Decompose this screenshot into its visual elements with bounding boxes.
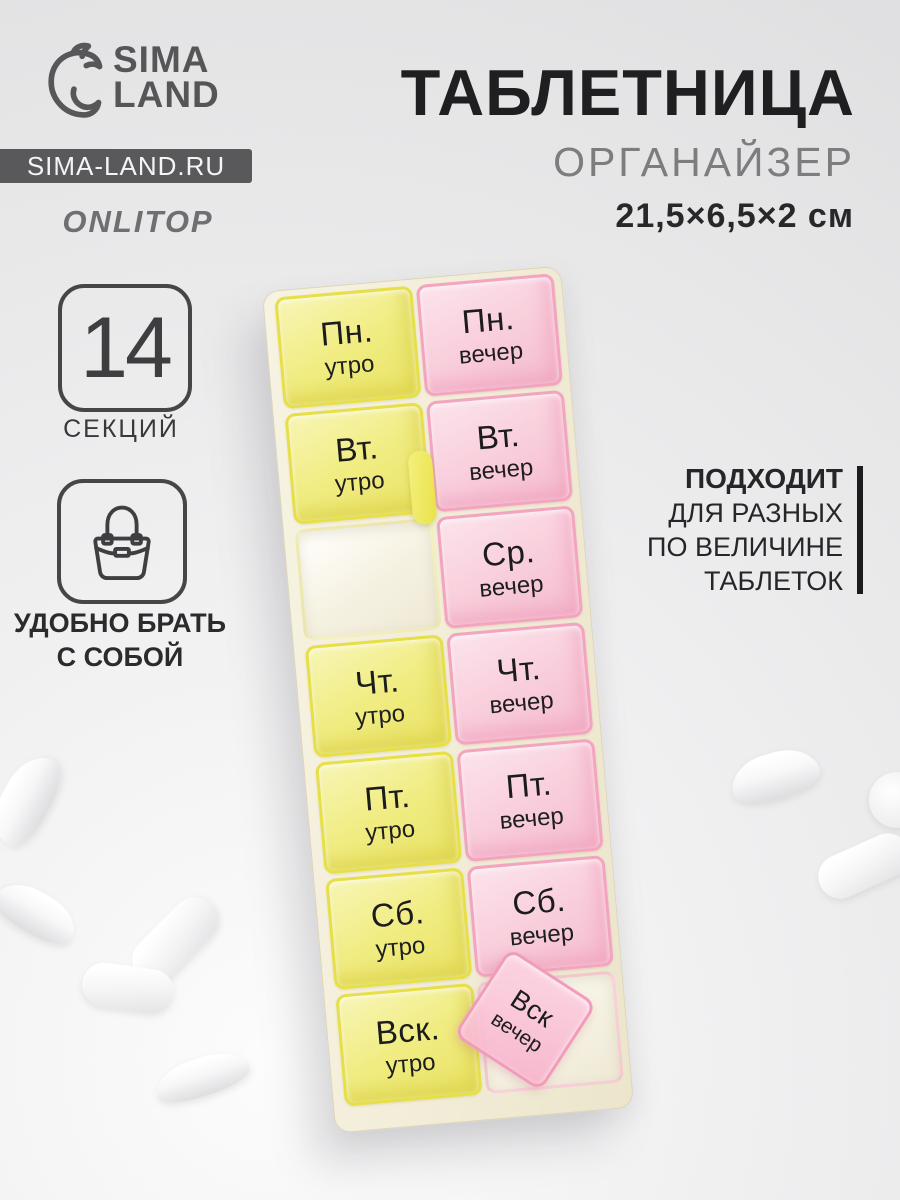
- pill-organizer: Пн.утроВт.утроЧт.утроПт.утроСб.утроВск.у…: [262, 266, 635, 1134]
- organizer-cell-sun-morning: Вск.утро: [335, 983, 482, 1106]
- organizer-cell-sat-evening: Сб.вечер: [467, 855, 614, 978]
- handbag-icon: [79, 499, 165, 585]
- white-tablet-pill: [725, 741, 824, 810]
- cell-day-label: Пт.: [504, 765, 553, 807]
- cell-time-label: вечер: [499, 803, 565, 836]
- cell-time-label: утро: [354, 699, 406, 731]
- brand-name-line1: SIMA: [113, 42, 220, 77]
- organizer-cell-thu-morning: Чт.утро: [305, 634, 452, 757]
- cell-time-label: вечер: [488, 686, 554, 719]
- organizer-cell-fri-evening: Пт.вечер: [456, 738, 603, 861]
- cell-day-label: Вск.: [374, 1009, 441, 1052]
- organizer-cell-mon-morning: Пн.утро: [274, 286, 421, 409]
- white-round-pill: [869, 772, 900, 828]
- fits-line4: ТАБЛЕТОК: [647, 564, 843, 598]
- white-tablet-pill: [0, 746, 70, 853]
- organizer-cell-tue-evening: Вт.вечер: [426, 389, 573, 512]
- product-dimensions: 21,5×6,5×2 см: [615, 197, 854, 236]
- organizer-cell-wed-evening: Ср.вечер: [436, 506, 583, 629]
- sections-count: 14: [80, 299, 170, 398]
- fits-feature-block: ПОДХОДИТ ДЛЯ РАЗНЫХ ПО ВЕЛИЧИНЕ ТАБЛЕТОК: [647, 462, 863, 598]
- organizer-cell-thu-evening: Чт.вечер: [446, 622, 593, 745]
- portable-line1: УДОБНО БРАТЬ: [0, 606, 240, 640]
- organizer-cell-sun-evening: Всквечер: [477, 971, 624, 1094]
- fits-text: ПОДХОДИТ ДЛЯ РАЗНЫХ ПО ВЕЛИЧИНЕ ТАБЛЕТОК: [647, 462, 843, 598]
- cell-day-label: Вт.: [475, 416, 521, 458]
- sima-land-logo-icon: [44, 42, 106, 122]
- cell-day-label: Пн.: [319, 312, 375, 354]
- cell-day-label: Вт.: [334, 428, 380, 470]
- portable-line2: С СОБОЙ: [0, 640, 240, 674]
- white-capsule-pill: [811, 826, 900, 905]
- organizer-cell-mon-evening: Пн.вечер: [416, 273, 563, 396]
- cell-day-label: Пт.: [363, 777, 412, 819]
- brand-name: SIMA LAND: [113, 42, 220, 112]
- product-subtitle: ОРГАНАЙЗЕР: [553, 139, 855, 186]
- fits-vertical-bar: [857, 466, 863, 594]
- website-band: SIMA-LAND.RU: [0, 149, 252, 183]
- sections-count-badge: 14: [58, 284, 192, 412]
- portable-text: УДОБНО БРАТЬ С СОБОЙ: [0, 606, 240, 674]
- portable-badge: [57, 479, 187, 604]
- fits-line2: ДЛЯ РАЗНЫХ: [647, 496, 843, 530]
- product-card: { "brand": { "logo_line1": "SIMA", "logo…: [0, 0, 900, 1200]
- cell-time-label: утро: [364, 816, 416, 848]
- cell-time-label: вечер: [468, 454, 534, 487]
- cell-time-label: утро: [375, 932, 427, 964]
- cell-time-label: утро: [324, 351, 376, 383]
- cell-time-label: утро: [385, 1048, 437, 1080]
- organizer-cell-wed-morning: [295, 518, 442, 641]
- cell-day-label: Чт.: [495, 648, 542, 690]
- cell-time-label: вечер: [509, 919, 575, 952]
- white-tablet-pill: [0, 873, 85, 953]
- white-tablet-pill: [150, 1044, 253, 1110]
- cell-time-label: утро: [334, 467, 386, 499]
- cell-day-label: Сб.: [511, 881, 568, 924]
- sub-brand-label: ONLITOP: [42, 204, 234, 240]
- product-title: ТАБЛЕТНИЦА: [401, 55, 855, 130]
- sections-label: СЕКЦИЙ: [28, 415, 214, 444]
- cell-day-label: Сб.: [369, 893, 426, 936]
- cell-day-label: Пн.: [460, 299, 516, 341]
- cell-time-label: вечер: [478, 570, 544, 603]
- brand-name-line2: LAND: [113, 77, 220, 112]
- cell-time-label: вечер: [458, 338, 524, 371]
- organizer-cell-fri-morning: Пт.утро: [315, 751, 462, 874]
- organizer-cell-sat-morning: Сб.утро: [325, 867, 472, 990]
- cell-day-label: Ср.: [480, 532, 536, 574]
- fits-line3: ПО ВЕЛИЧИНЕ: [647, 530, 843, 564]
- cell-day-label: Чт.: [354, 661, 401, 703]
- fits-line1: ПОДХОДИТ: [647, 462, 843, 496]
